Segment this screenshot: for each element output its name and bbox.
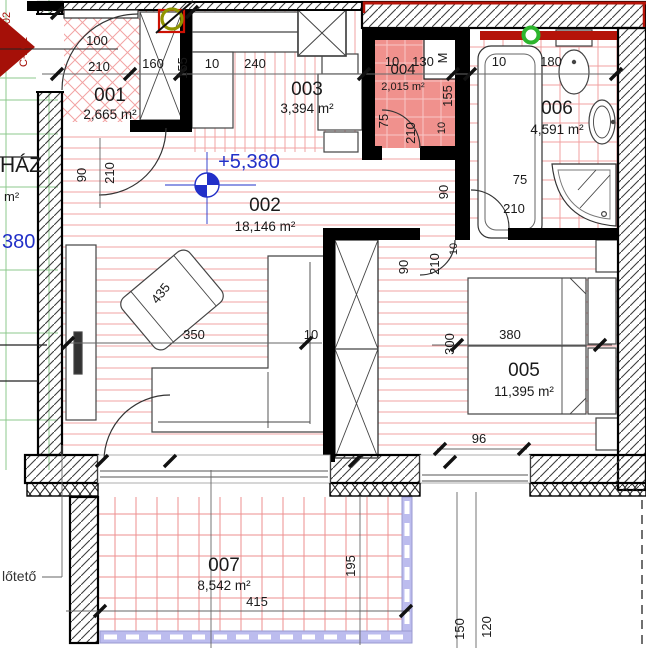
floor-plan: 001 2,665 m² 002 18,146 m² 003 3,394 m² … [0,0,646,649]
nightstand [596,418,618,450]
dim-label: 380 [499,327,521,342]
room-area-003: 3,394 m² [280,101,334,116]
dim-label: 10 [385,54,399,69]
dim-label: 350 [183,327,205,342]
insulation [27,483,98,496]
dim-label: 10 [492,54,506,69]
canopy-label: lőtető [2,568,36,584]
dim-label: 75 [376,114,391,128]
section-label: C-201 [18,37,30,67]
level-label-partial: 380 [2,231,35,253]
headboard [588,348,616,414]
room-number-002: 002 [249,195,281,216]
room-area-007: 8,542 m² [197,578,251,593]
room-number-005: 005 [508,360,540,381]
wardrobe [335,240,378,458]
dim-label: 120 [479,616,494,638]
dim-label: 210 [403,122,418,144]
level-label: +5,380 [218,151,280,173]
section-label-partial: 02 [1,12,13,24]
dim-label: 90 [436,185,451,199]
dim-label: 10 [205,56,219,71]
dim-label: 210 [102,162,117,184]
room-area-006: 4,591 m² [530,122,584,137]
room-number-003: 003 [291,79,323,100]
room-number-001: 001 [94,85,126,106]
dim-label: 195 [343,555,358,577]
dim-label: 150 [452,618,467,640]
dim-label: 240 [244,56,266,71]
dim-label: 210 [88,59,110,74]
insulation [330,483,420,496]
dim-label: 96 [472,431,486,446]
dim-label: 10 [448,243,460,255]
terrace-floor [98,497,412,632]
dim-label: M [435,53,450,64]
staircase-area-label: m² [4,189,20,204]
room-area-002: 18,146 m² [235,219,296,234]
vent-shaft [298,10,346,56]
nightstand [596,240,618,272]
washbasin [589,100,615,144]
insulation [530,483,646,496]
dim-label: 415 [246,594,268,609]
dim-label: 210 [427,253,442,275]
towel-radiator [480,31,617,40]
staircase-label: HÁZ [0,154,42,177]
dim-label: 75 [513,172,527,187]
dim-label: 160 [142,56,164,71]
dim-label: 180 [540,54,562,69]
dim-label: 10 [304,327,318,342]
room-area-001: 2,665 m² [83,107,137,122]
terrace-glazing [98,455,330,483]
dim-label: 155 [440,85,455,107]
room-area-004: 2,015 m² [381,81,425,93]
dim-label: 130 [412,54,434,69]
dim-label: 210 [503,201,525,216]
dim-label: 100 [86,33,108,48]
dim-label: 300 [442,333,457,355]
dim-label: 10 [436,122,448,134]
valve-marker-icon [524,28,539,43]
tv [74,332,82,374]
room-number-006: 006 [541,98,573,119]
room-number-007: 007 [208,555,240,576]
dim-label: 90 [396,260,411,274]
headboard [588,278,616,344]
dim-label: 155 [175,57,190,79]
bedroom-window [420,455,530,483]
dim-label: 90 [74,168,89,182]
room-area-005: 11,395 m² [494,384,554,399]
